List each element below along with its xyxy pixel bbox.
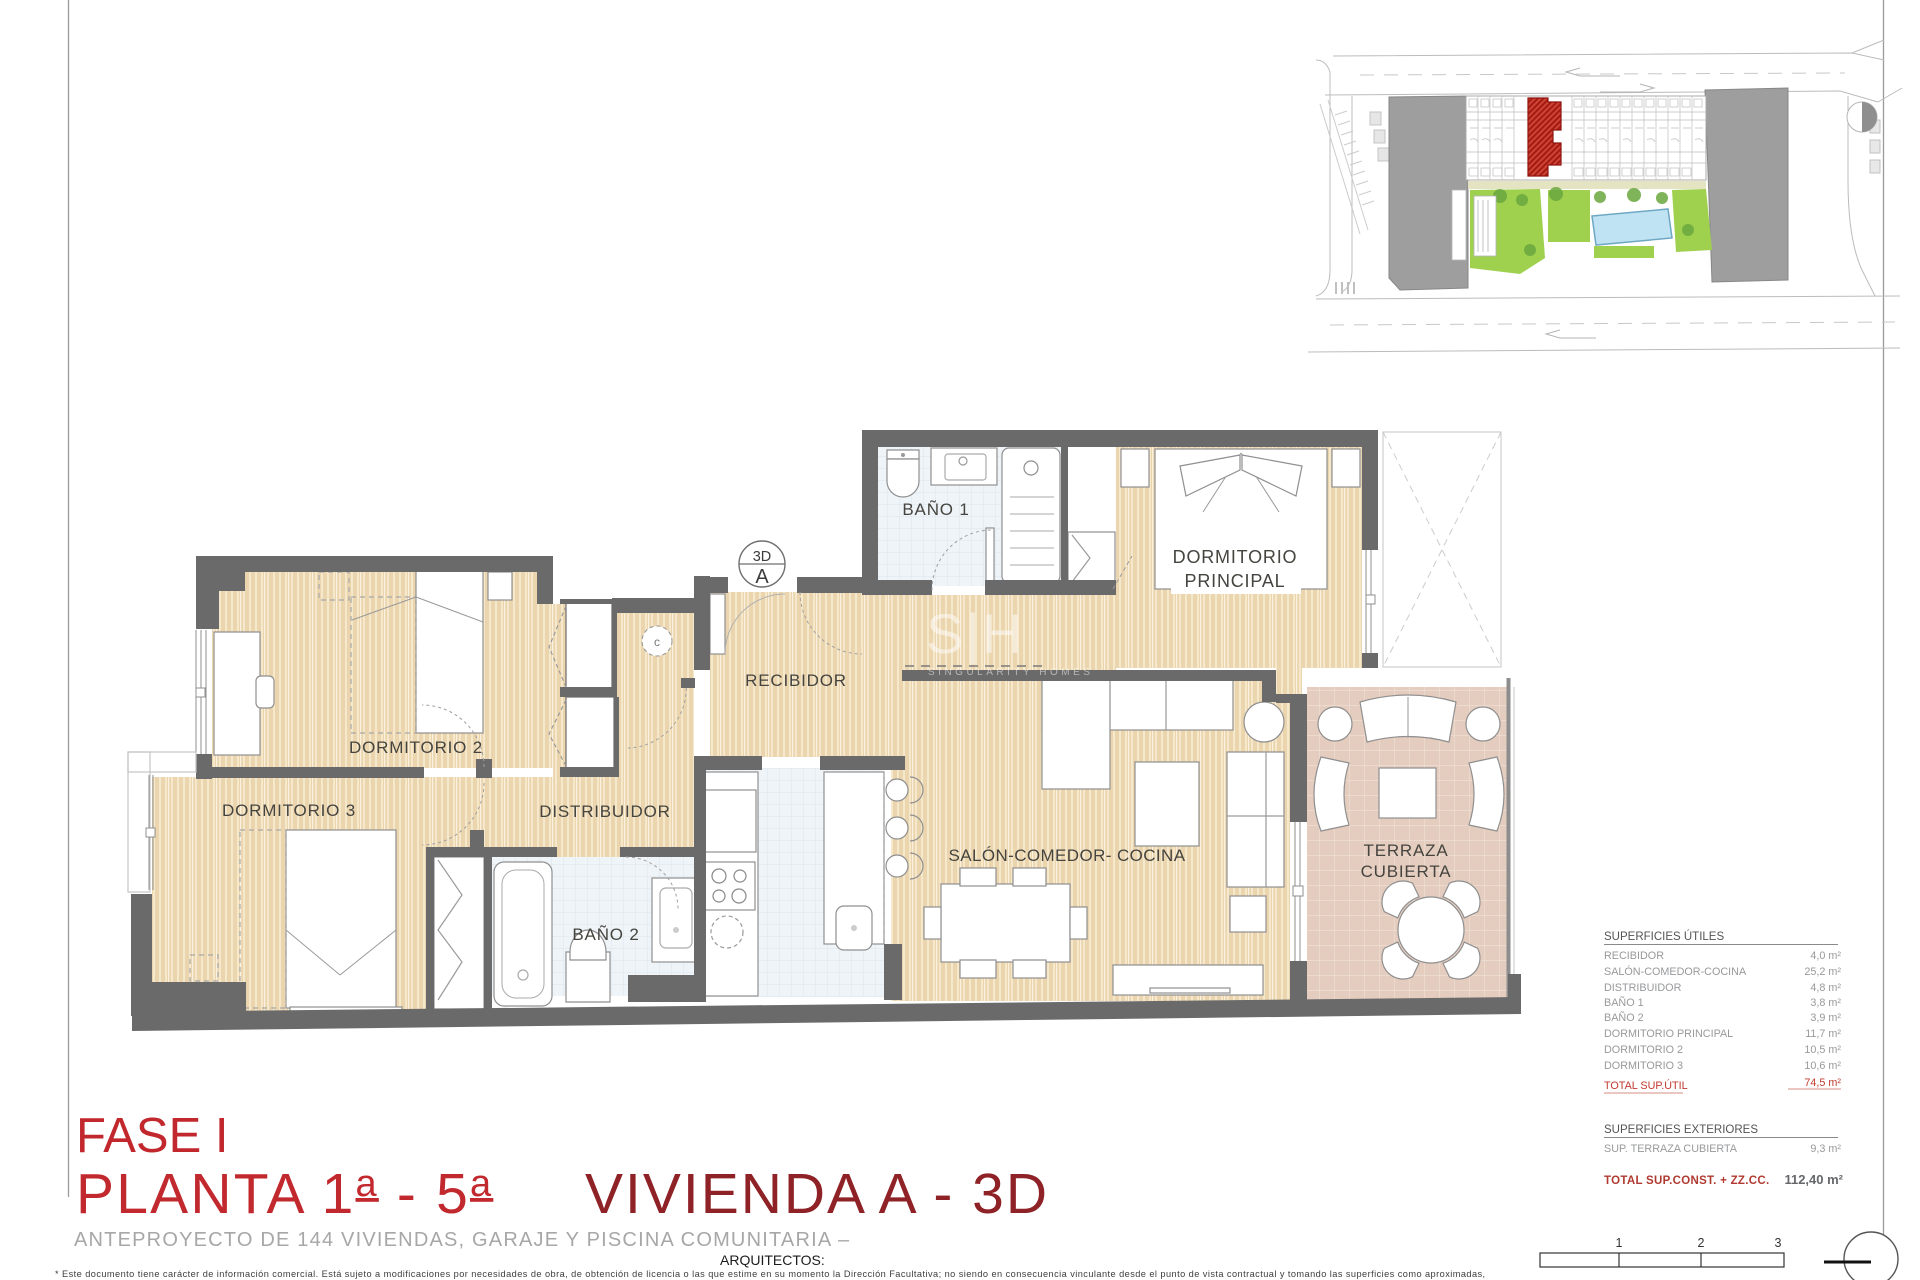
svg-text:3,9 m²: 3,9 m² <box>1810 1012 1841 1024</box>
svg-text:11,7 m²: 11,7 m² <box>1805 1028 1841 1040</box>
svg-text:3,8 m²: 3,8 m² <box>1810 997 1841 1009</box>
svg-text:DORMITORIO 3: DORMITORIO 3 <box>1604 1060 1683 1072</box>
svg-text:DORMITORIO 3: DORMITORIO 3 <box>222 801 356 820</box>
svg-text:SUP. TERRAZA CUBIERTA: SUP. TERRAZA CUBIERTA <box>1604 1143 1738 1155</box>
svg-text:* Este documento tiene carácte: * Este documento tiene carácter de infor… <box>55 1269 1486 1279</box>
svg-text:CUBIERTA: CUBIERTA <box>1361 862 1452 881</box>
svg-text:VIVIENDA A - 3D: VIVIENDA A - 3D <box>585 1162 1049 1226</box>
svg-text:9,3 m²: 9,3 m² <box>1810 1143 1841 1155</box>
svg-text:RECIBIDOR: RECIBIDOR <box>745 671 847 690</box>
svg-text:SALÓN-COMEDOR- COCINA: SALÓN-COMEDOR- COCINA <box>949 846 1186 865</box>
svg-text:25,2 m²: 25,2 m² <box>1804 966 1841 978</box>
svg-text:4,8 m²: 4,8 m² <box>1810 982 1841 994</box>
svg-text:10,6 m²: 10,6 m² <box>1804 1060 1841 1072</box>
svg-text:A: A <box>755 566 769 588</box>
svg-text:74,5 m²: 74,5 m² <box>1804 1077 1841 1089</box>
svg-text:SALÓN-COMEDOR-COCINA: SALÓN-COMEDOR-COCINA <box>1604 965 1747 978</box>
svg-text:BAÑO 1: BAÑO 1 <box>1604 996 1644 1009</box>
svg-text:BAÑO 1: BAÑO 1 <box>902 500 969 519</box>
svg-text:FASE I: FASE I <box>76 1109 229 1163</box>
svg-text:PRINCIPAL: PRINCIPAL <box>1185 571 1286 591</box>
svg-text:4,0 m²: 4,0 m² <box>1810 950 1841 962</box>
svg-text:112,40 m²: 112,40 m² <box>1784 1172 1843 1187</box>
svg-text:ARQUITECTOS:: ARQUITECTOS: <box>720 1252 825 1268</box>
svg-text:TOTAL SUP.ÚTIL: TOTAL SUP.ÚTIL <box>1604 1079 1688 1092</box>
svg-text:DORMITORIO PRINCIPAL: DORMITORIO PRINCIPAL <box>1604 1028 1733 1040</box>
svg-text:TOTAL SUP.CONST. + ZZ.CC.: TOTAL SUP.CONST. + ZZ.CC. <box>1604 1175 1769 1187</box>
svg-text:3: 3 <box>1775 1236 1782 1250</box>
svg-text:TERRAZA: TERRAZA <box>1364 841 1449 860</box>
svg-text:DISTRIBUIDOR: DISTRIBUIDOR <box>539 802 670 821</box>
svg-text:ANTEPROYECTO DE 144 VIVIENDAS,: ANTEPROYECTO DE 144 VIVIENDAS, GARAJE Y … <box>74 1229 850 1251</box>
svg-text:SUPERFICIES ÚTILES: SUPERFICIES ÚTILES <box>1604 930 1724 943</box>
svg-text:RECIBIDOR: RECIBIDOR <box>1604 950 1664 962</box>
svg-text:DORMITORIO: DORMITORIO <box>1173 547 1298 567</box>
svg-text:DISTRIBUIDOR: DISTRIBUIDOR <box>1604 982 1682 994</box>
svg-text:PLANTA 1a - 5a: PLANTA 1a - 5a <box>76 1162 493 1226</box>
svg-text:DORMITORIO 2: DORMITORIO 2 <box>1604 1044 1683 1056</box>
svg-text:BAÑO 2: BAÑO 2 <box>572 925 639 944</box>
svg-text:BAÑO 2: BAÑO 2 <box>1604 1011 1644 1024</box>
svg-text:SINGULARITY HOMES: SINGULARITY HOMES <box>928 667 1093 678</box>
svg-text:1: 1 <box>1616 1236 1623 1250</box>
svg-text:DORMITORIO 2: DORMITORIO 2 <box>349 738 483 757</box>
svg-text:c: c <box>654 635 660 649</box>
svg-text:3D: 3D <box>753 549 772 565</box>
svg-text:10,5 m²: 10,5 m² <box>1804 1044 1841 1056</box>
svg-text:S|H: S|H <box>926 602 1024 665</box>
svg-text:SUPERFICIES EXTERIORES: SUPERFICIES EXTERIORES <box>1604 1124 1758 1136</box>
svg-text:2: 2 <box>1698 1236 1705 1250</box>
